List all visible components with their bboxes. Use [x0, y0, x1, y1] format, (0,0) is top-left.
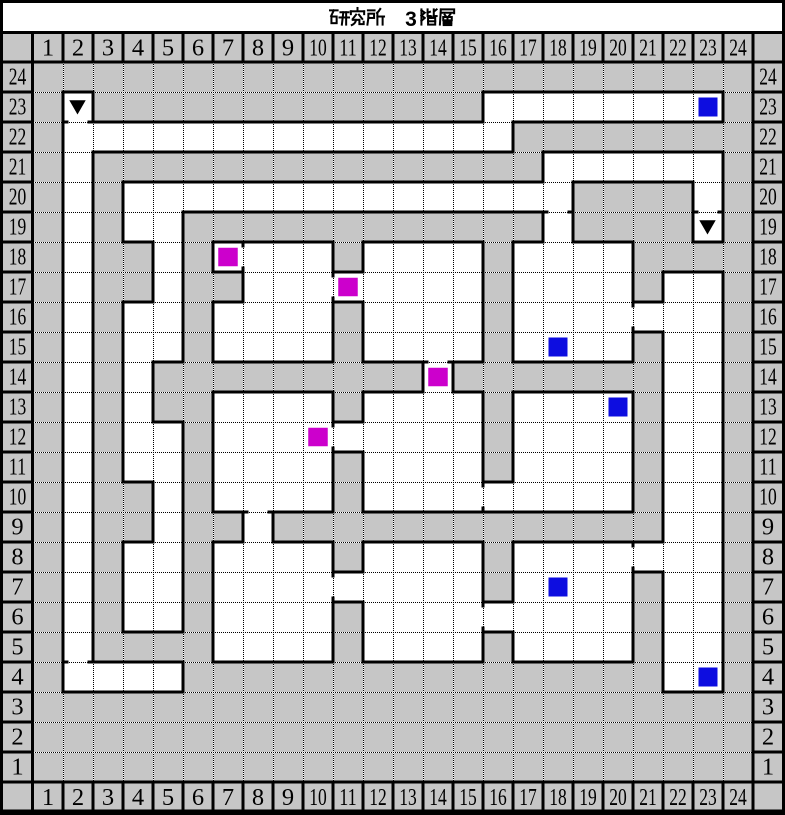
svg-text:22: 22	[669, 784, 687, 811]
svg-text:12: 12	[369, 784, 387, 811]
svg-text:23: 23	[9, 94, 27, 121]
svg-text:18: 18	[549, 784, 567, 811]
svg-text:21: 21	[639, 35, 657, 62]
svg-text:8: 8	[252, 784, 264, 811]
svg-text:24: 24	[729, 784, 747, 811]
svg-text:18: 18	[759, 244, 777, 271]
svg-text:17: 17	[9, 274, 27, 301]
svg-text:20: 20	[609, 35, 627, 62]
svg-text:17: 17	[519, 35, 537, 62]
svg-text:4: 4	[132, 784, 144, 811]
svg-text:11: 11	[339, 35, 357, 62]
svg-text:23: 23	[699, 784, 717, 811]
svg-text:21: 21	[9, 154, 27, 181]
svg-text:7: 7	[762, 574, 774, 601]
svg-text:1: 1	[11, 754, 23, 781]
svg-text:9: 9	[282, 784, 294, 811]
svg-text:10: 10	[9, 484, 27, 511]
svg-text:4: 4	[132, 35, 144, 62]
svg-text:24: 24	[759, 64, 777, 91]
svg-text:19: 19	[579, 784, 597, 811]
svg-text:22: 22	[669, 35, 687, 62]
svg-text:3: 3	[405, 8, 417, 31]
svg-text:5: 5	[762, 634, 774, 661]
svg-text:11: 11	[339, 784, 357, 811]
svg-text:10: 10	[309, 35, 327, 62]
svg-text:6: 6	[11, 604, 23, 631]
svg-text:2: 2	[11, 724, 23, 751]
svg-text:2: 2	[72, 784, 84, 811]
svg-text:6: 6	[762, 604, 774, 631]
svg-text:16: 16	[489, 35, 507, 62]
svg-text:15: 15	[459, 35, 477, 62]
svg-text:8: 8	[252, 35, 264, 62]
svg-text:9: 9	[282, 35, 294, 62]
svg-text:4: 4	[762, 664, 774, 691]
svg-text:16: 16	[9, 304, 27, 331]
svg-text:14: 14	[9, 364, 27, 391]
svg-text:6: 6	[192, 35, 204, 62]
svg-text:22: 22	[9, 124, 27, 151]
svg-text:8: 8	[11, 544, 23, 571]
svg-text:9: 9	[762, 514, 774, 541]
svg-text:13: 13	[9, 394, 27, 421]
svg-text:24: 24	[729, 35, 747, 62]
svg-text:3: 3	[102, 35, 114, 62]
svg-text:21: 21	[759, 154, 777, 181]
svg-text:14: 14	[759, 364, 777, 391]
svg-text:12: 12	[9, 424, 27, 451]
svg-text:16: 16	[759, 304, 777, 331]
svg-text:10: 10	[759, 484, 777, 511]
svg-text:9: 9	[11, 514, 23, 541]
svg-text:17: 17	[519, 784, 537, 811]
svg-text:3: 3	[762, 694, 774, 721]
svg-text:1: 1	[42, 784, 54, 811]
svg-text:2: 2	[762, 724, 774, 751]
svg-text:10: 10	[309, 784, 327, 811]
svg-text:16: 16	[489, 784, 507, 811]
svg-text:7: 7	[222, 784, 234, 811]
svg-text:18: 18	[549, 35, 567, 62]
svg-text:11: 11	[9, 454, 27, 481]
svg-text:7: 7	[11, 574, 23, 601]
svg-text:23: 23	[759, 94, 777, 121]
svg-text:13: 13	[759, 394, 777, 421]
svg-text:2: 2	[72, 35, 84, 62]
svg-text:15: 15	[459, 784, 477, 811]
svg-text:6: 6	[192, 784, 204, 811]
svg-text:4: 4	[11, 664, 23, 691]
svg-text:11: 11	[759, 454, 777, 481]
svg-text:15: 15	[9, 334, 27, 361]
svg-text:20: 20	[9, 184, 27, 211]
svg-text:13: 13	[399, 784, 417, 811]
svg-text:22: 22	[759, 124, 777, 151]
svg-text:19: 19	[579, 35, 597, 62]
svg-text:1: 1	[42, 35, 54, 62]
svg-text:5: 5	[162, 784, 174, 811]
svg-text:3: 3	[102, 784, 114, 811]
svg-text:20: 20	[759, 184, 777, 211]
svg-text:14: 14	[429, 35, 447, 62]
svg-text:12: 12	[759, 424, 777, 451]
svg-text:13: 13	[399, 35, 417, 62]
svg-text:20: 20	[609, 784, 627, 811]
svg-text:24: 24	[9, 64, 27, 91]
svg-text:3: 3	[11, 694, 23, 721]
svg-text:14: 14	[429, 784, 447, 811]
svg-text:12: 12	[369, 35, 387, 62]
svg-text:8: 8	[762, 544, 774, 571]
svg-text:23: 23	[699, 35, 717, 62]
svg-text:5: 5	[11, 634, 23, 661]
svg-text:19: 19	[759, 214, 777, 241]
svg-text:15: 15	[759, 334, 777, 361]
svg-text:17: 17	[759, 274, 777, 301]
svg-text:18: 18	[9, 244, 27, 271]
svg-text:5: 5	[162, 35, 174, 62]
svg-text:7: 7	[222, 35, 234, 62]
svg-text:1: 1	[762, 754, 774, 781]
svg-text:19: 19	[9, 214, 27, 241]
svg-text:21: 21	[639, 784, 657, 811]
